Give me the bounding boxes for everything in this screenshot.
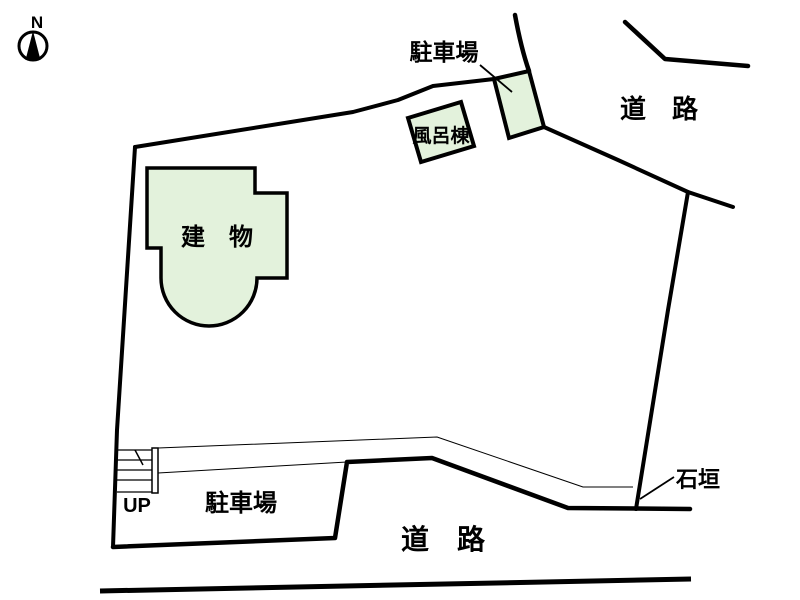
retaining-wall-line-upper — [158, 437, 633, 487]
stone-wall-label: 石垣 — [675, 467, 720, 492]
stairs-up-label: UP — [123, 495, 151, 517]
leader-stone-wall — [640, 477, 674, 499]
compass-north-label: N — [31, 13, 43, 32]
road-edge-top-right — [625, 22, 748, 66]
compass-needle-icon — [26, 31, 41, 60]
boundary-northeast — [544, 127, 733, 207]
boundary-east — [636, 192, 688, 509]
site-plan-canvas: N 駐車場 道 路 風呂棟 建 物 UP 駐車 — [0, 0, 800, 600]
parking-bottom-label: 駐車場 — [205, 489, 277, 517]
road-edge-bottom — [100, 579, 691, 591]
retaining-wall-line-lower — [158, 462, 347, 473]
road-top-label: 道 路 — [620, 94, 699, 124]
road-bottom-label: 道 路 — [401, 523, 486, 555]
stairs — [117, 448, 158, 493]
road-edge-top — [515, 15, 529, 71]
main-building-label: 建 物 — [181, 224, 253, 251]
boundary-west — [113, 147, 135, 547]
compass: N — [19, 13, 47, 60]
stairs-direction-tick — [135, 450, 143, 465]
stairs-treads — [117, 450, 152, 492]
bath-building-label: 風呂棟 — [412, 124, 470, 147]
site-plan: N 駐車場 道 路 風呂棟 建 物 UP 駐車 — [0, 0, 800, 600]
parking-top-shape — [494, 71, 544, 138]
parking-top-label: 駐車場 — [410, 39, 479, 65]
stairs-side-wall — [152, 448, 158, 493]
